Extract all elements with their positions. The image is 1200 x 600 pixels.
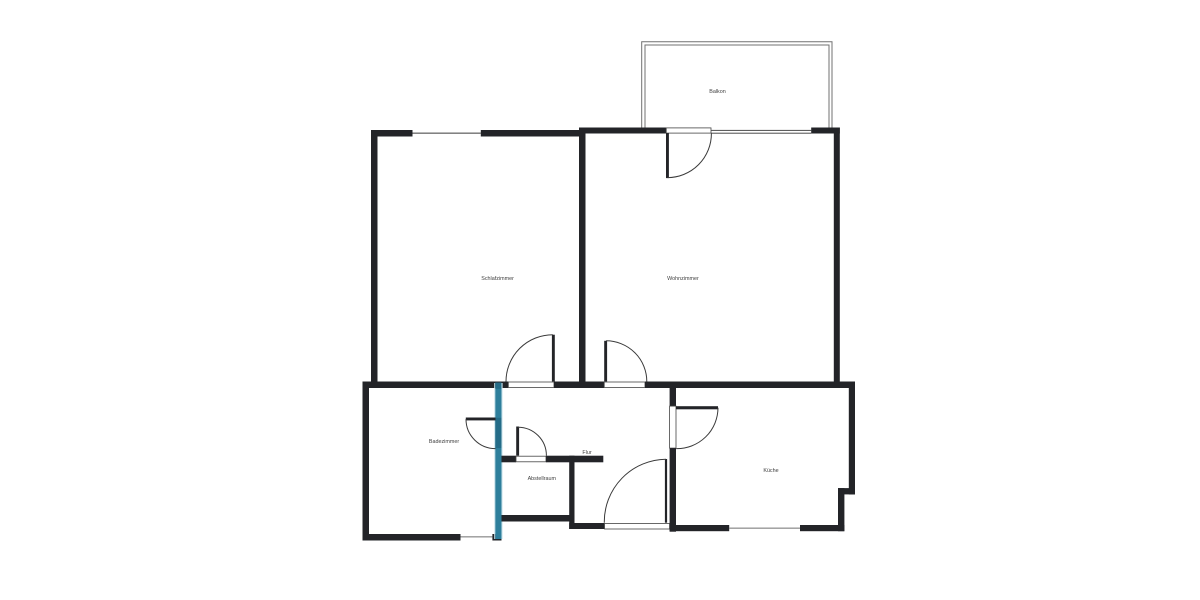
svg-text:Balkon: Balkon — [709, 89, 725, 95]
svg-text:Küche: Küche — [763, 468, 778, 474]
svg-text:Flur: Flur — [582, 450, 591, 456]
svg-text:Badezimmer: Badezimmer — [429, 439, 459, 445]
svg-text:Abstellraum: Abstellraum — [528, 476, 557, 482]
svg-text:Schlafzimmer: Schlafzimmer — [481, 276, 514, 282]
svg-text:Wohnzimmer: Wohnzimmer — [667, 276, 699, 282]
